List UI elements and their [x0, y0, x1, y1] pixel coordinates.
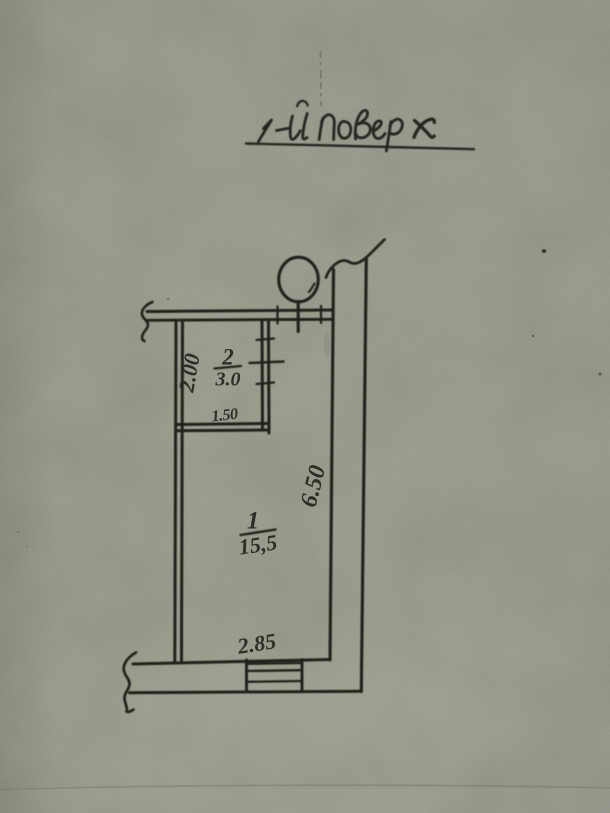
svg-text:1.50: 1.50 [211, 406, 239, 426]
svg-text:15,5: 15,5 [237, 529, 279, 559]
svg-text:2: 2 [221, 345, 234, 370]
svg-text:3.0: 3.0 [215, 369, 241, 391]
svg-text:1: 1 [247, 508, 260, 535]
